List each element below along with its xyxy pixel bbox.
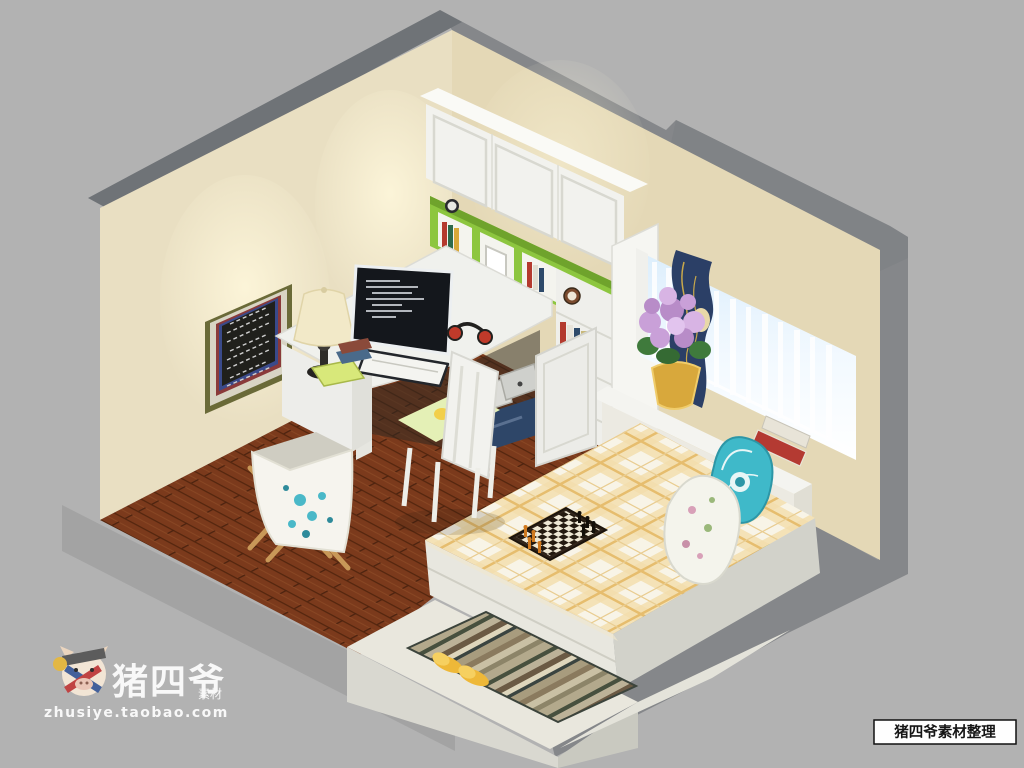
- isometric-bedroom-scene: 猪四爷 素材 zhusiye.taobao.com 猪四爷素材整理: [0, 0, 1024, 768]
- window-frame: [636, 248, 648, 352]
- gold-coin: [53, 657, 67, 671]
- watermark-url-text: zhusiye.taobao.com: [44, 705, 229, 721]
- room-render: 猪四爷 素材 zhusiye.taobao.com 猪四爷素材整理: [0, 0, 1024, 768]
- footer-tag-text: 猪四爷素材整理: [893, 723, 996, 741]
- brand-small-text: 素材: [198, 687, 222, 701]
- footer-tag: 猪四爷素材整理: [874, 720, 1016, 744]
